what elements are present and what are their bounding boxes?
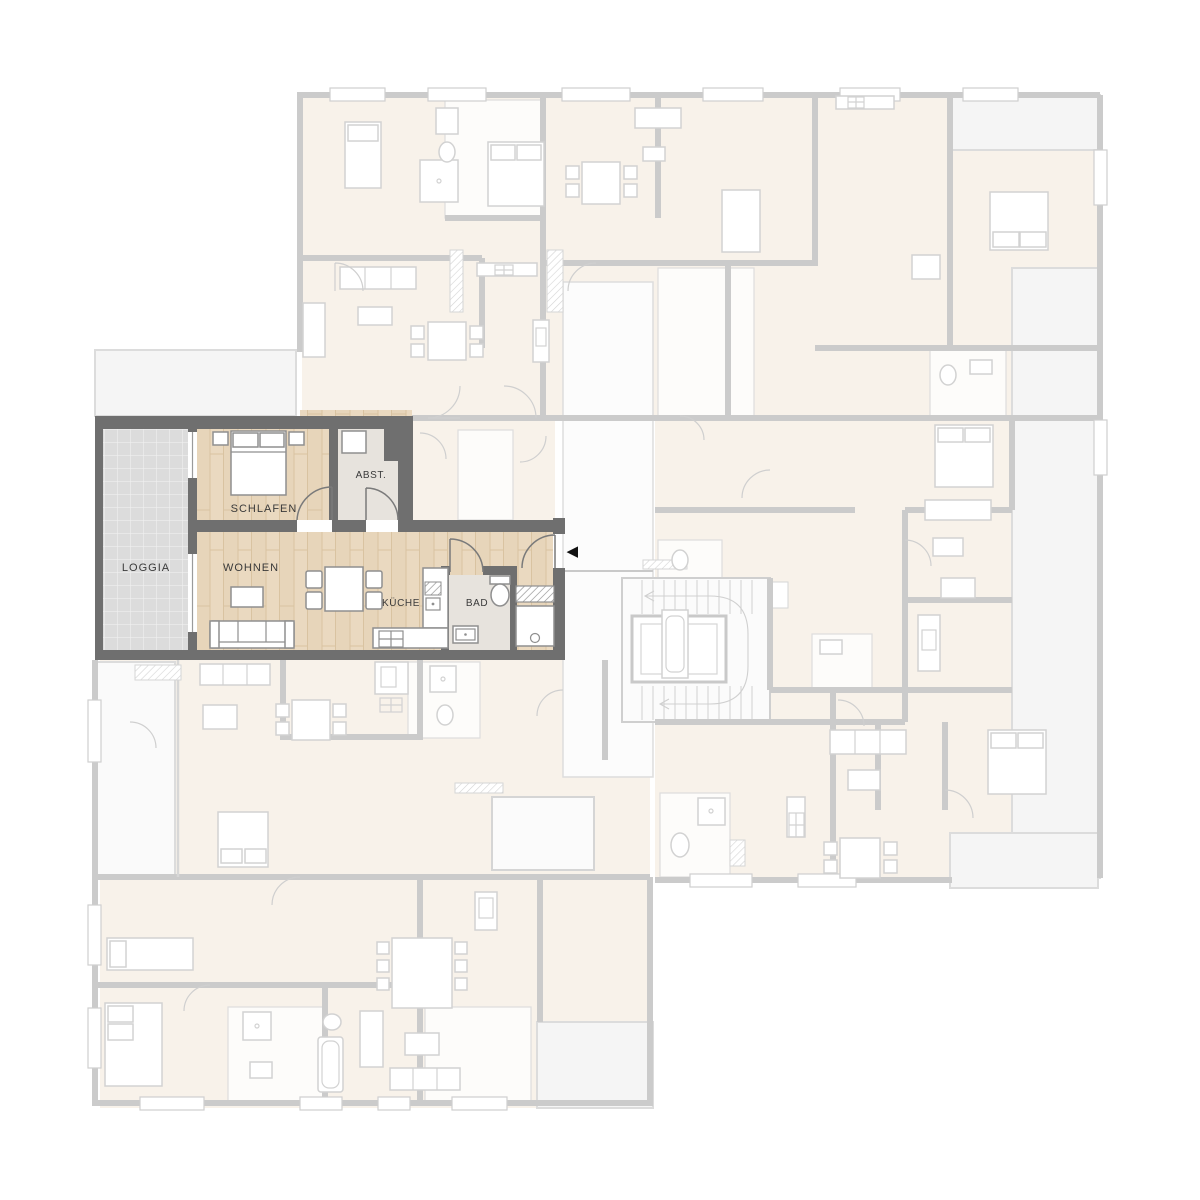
bed [231, 431, 286, 495]
nightstand-right [289, 432, 304, 445]
coffee-table [231, 587, 263, 607]
room-loggia-floor [103, 429, 188, 650]
room-label-schlafen: SCHLAFEN [231, 503, 298, 515]
sofa [210, 621, 294, 648]
floor-plan-drawing: ◀ LOGGIA SCHLAFEN ABST. WOHNEN KÜCHE BAD [0, 0, 1200, 1200]
room-label-loggia: LOGGIA [122, 562, 170, 574]
nightstand-left [213, 432, 228, 445]
stairwell [622, 560, 788, 722]
washing-machine [516, 606, 554, 646]
room-label-kueche: KÜCHE [382, 597, 420, 609]
room-label-abst: ABST. [356, 470, 387, 481]
room-label-wohnen: WOHNEN [223, 562, 279, 574]
floor-plan-canvas: ◀ LOGGIA SCHLAFEN ABST. WOHNEN KÜCHE BAD [0, 0, 1200, 1200]
room-label-bad: BAD [466, 598, 488, 609]
abst-shelf [342, 431, 366, 453]
wardrobe [516, 586, 554, 602]
entrance-arrow-icon: ◀ [566, 542, 578, 560]
